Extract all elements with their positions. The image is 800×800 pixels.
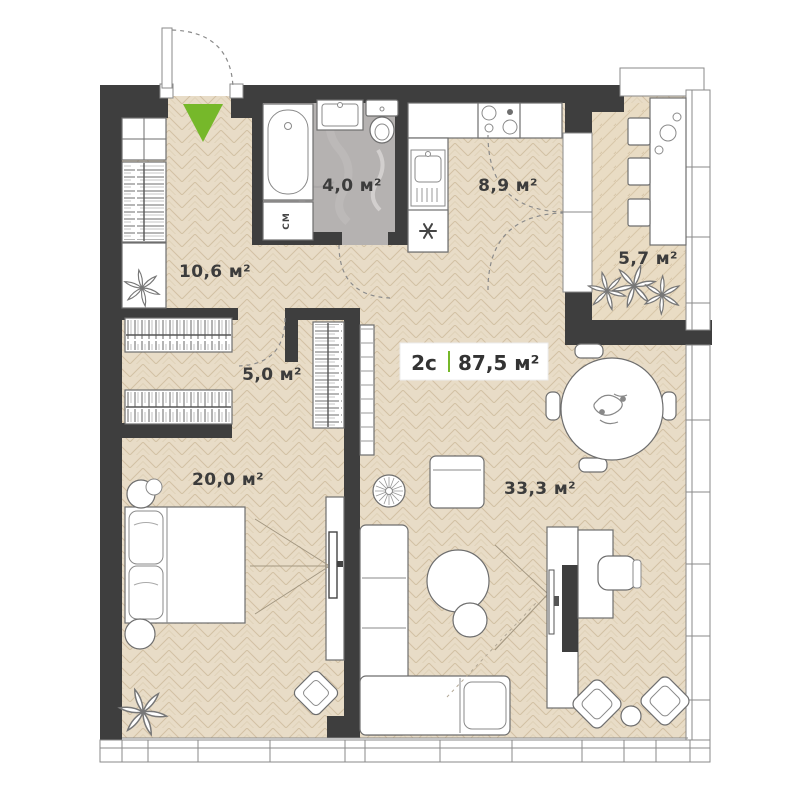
washing-machine: СМ xyxy=(263,202,313,240)
desk-chair xyxy=(598,556,641,590)
bedroom-area-label: 20,0 м² xyxy=(192,470,264,490)
balcony-area-label: 5,7 м² xyxy=(618,249,678,269)
entrance-door-leaf xyxy=(162,28,172,88)
balcony-bar-counter xyxy=(650,98,686,245)
dining-chair xyxy=(579,458,607,472)
wall-center-vertical xyxy=(344,308,360,738)
side-table xyxy=(621,706,641,726)
window-bottom xyxy=(100,740,710,762)
bathtub xyxy=(263,104,313,200)
dining-table xyxy=(561,358,663,460)
fridge xyxy=(408,210,448,252)
lamp xyxy=(146,479,162,495)
coffee-table-small xyxy=(453,603,487,637)
title-badge: 2с 87,5 м² xyxy=(400,343,548,380)
dining-chair xyxy=(575,344,603,358)
bar-stool xyxy=(628,158,650,185)
wall-bedroom-top xyxy=(100,423,232,438)
bar-stool xyxy=(628,118,650,145)
nightstand xyxy=(125,619,155,649)
bedroom-tv-console xyxy=(326,497,344,660)
bathroom-sink xyxy=(317,100,363,130)
clothes-rack-bottom xyxy=(125,390,232,424)
kitchen-sink xyxy=(411,150,445,206)
bookshelf xyxy=(360,325,374,455)
apartment-type-label: 2с xyxy=(411,351,437,375)
clothes-rack-top xyxy=(125,318,232,352)
hall-cabinet xyxy=(122,118,166,160)
media-dark-shelf xyxy=(562,565,578,652)
door-jamb-right xyxy=(230,84,243,98)
kitchen-area-label: 8,9 м² xyxy=(478,176,538,196)
floor-plan-page: СМ xyxy=(0,0,800,800)
coffee-table xyxy=(427,550,489,612)
stove xyxy=(478,103,520,138)
bathroom-area-label: 4,0 м² xyxy=(322,176,382,196)
plant-round xyxy=(373,475,405,507)
armchair-square xyxy=(430,456,484,508)
floor-plan-svg: СМ xyxy=(0,0,800,800)
wall-bottom-pier xyxy=(327,716,358,738)
living-area-label: 33,3 м² xyxy=(504,479,576,499)
dining-chair xyxy=(662,392,676,420)
wall-left-outer xyxy=(100,85,122,740)
hallway-area-label: 10,6 м² xyxy=(179,262,251,282)
tv-living xyxy=(549,570,554,634)
wall-top-middle xyxy=(231,85,592,103)
wall-balcony-top xyxy=(565,103,592,135)
wall-bathroom-bottom-stub xyxy=(388,232,410,245)
total-area-label: 87,5 м² xyxy=(458,351,539,375)
tv xyxy=(329,532,337,598)
hallway-furniture xyxy=(119,118,166,310)
wall-wardrobe-stub xyxy=(285,308,298,362)
washing-machine-label: СМ xyxy=(282,212,292,230)
pillow xyxy=(129,511,163,564)
wall-bathroom-left xyxy=(252,100,263,245)
wall-top-left xyxy=(100,85,168,118)
dining-chair xyxy=(546,392,560,420)
bar-stool xyxy=(628,199,650,226)
pillow xyxy=(129,566,163,619)
hall-shelf xyxy=(119,243,166,310)
clothes-rack-right xyxy=(313,322,344,428)
wardrobe-area-label: 5,0 м² xyxy=(242,365,302,385)
hall-wardrobe xyxy=(122,162,166,242)
bed xyxy=(125,507,245,623)
entrance-door-arc xyxy=(172,30,233,88)
window-balcony-right xyxy=(686,90,710,330)
window-living-right xyxy=(686,345,710,740)
